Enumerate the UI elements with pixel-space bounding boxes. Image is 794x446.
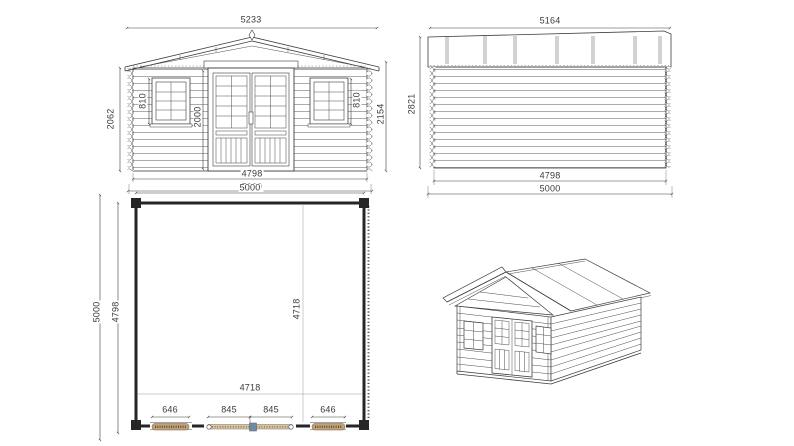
perspective-window-left — [464, 321, 483, 350]
dim-plan-depth-inner: 4798 — [112, 301, 121, 324]
corner-post — [359, 420, 369, 430]
dim-plan-depth-outer: 5000 — [93, 301, 102, 324]
front-double-door — [204, 61, 298, 171]
side-wall — [434, 67, 666, 168]
dim-side-base-length: 5000 — [539, 185, 562, 194]
perspective-door — [492, 317, 532, 377]
dim-plan-interior-width: 4718 — [239, 384, 262, 393]
plan-window-left — [152, 424, 189, 431]
dim-front-door-height: 2000 — [194, 106, 203, 129]
dim-side-roof-length: 5164 — [539, 17, 562, 26]
corner-post — [359, 198, 369, 208]
door-handle — [249, 112, 253, 124]
side-roof-band — [428, 31, 671, 67]
side-log-ends-right — [665, 67, 671, 168]
dim-side-wall-length: 4798 — [539, 172, 562, 181]
corner-post — [131, 420, 141, 430]
dim-side-total-height: 2821 — [408, 93, 417, 116]
floor-plan-drawing — [100, 193, 369, 440]
dim-plan-door-left: 845 — [220, 406, 238, 415]
front-window-left — [150, 78, 192, 127]
drawing-canvas: 5233 2062 810 2000 810 2154 4798 5000 51… — [0, 0, 794, 446]
plan-walls — [136, 203, 364, 426]
dim-plan-width-top: 5000 — [239, 184, 262, 193]
door-handle-marker — [250, 423, 257, 431]
roof-finial — [249, 30, 255, 40]
dim-front-window-left: 810 — [139, 92, 148, 110]
dim-front-wall-height: 2062 — [107, 108, 116, 131]
dim-plan-interior-depth: 4718 — [293, 298, 302, 321]
front-window-right — [308, 78, 350, 127]
side-log-ends-left — [430, 67, 436, 168]
perspective-view-drawing — [443, 259, 651, 384]
linework — [0, 0, 794, 446]
dim-front-eave-height: 2154 — [377, 103, 386, 126]
corner-post — [131, 198, 141, 208]
log-ends-right — [367, 68, 373, 171]
dim-plan-door-right: 845 — [262, 406, 280, 415]
dim-front-roof-width: 5233 — [240, 16, 263, 25]
dim-plan-window-left: 646 — [161, 406, 179, 415]
perspective-window-right — [536, 326, 551, 354]
plan-window-right — [312, 424, 345, 431]
log-ends-left — [128, 68, 134, 171]
dim-front-window-right: 810 — [353, 91, 362, 109]
dim-plan-window-right: 646 — [319, 406, 337, 415]
dim-front-wall-width: 4798 — [241, 170, 264, 179]
